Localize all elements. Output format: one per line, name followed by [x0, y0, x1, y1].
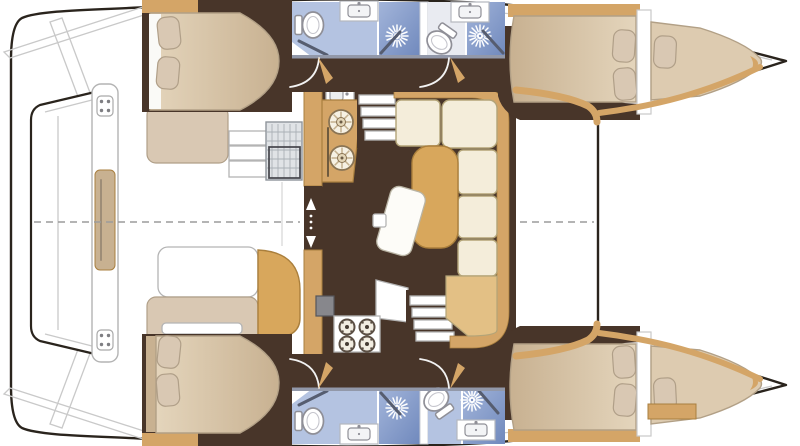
port-bathroom-aft — [292, 1, 420, 57]
port-bathroom-aft-wall-strip — [292, 55, 505, 59]
pillow — [612, 29, 636, 62]
port-aft-cabin-header — [142, 0, 198, 13]
port-fwd-cabin-deckband — [508, 4, 640, 17]
pillow — [156, 373, 181, 407]
stbd-aft-cabin-header — [142, 433, 198, 446]
cockpit-bench-port — [147, 106, 228, 163]
cleat-icon-starboard — [97, 330, 113, 350]
crossbeam-step-pad — [95, 170, 115, 270]
galley-prep-counter — [376, 280, 408, 322]
stbd-bathroom-fwd — [420, 383, 505, 444]
sink-icon — [451, 2, 489, 22]
sink-icon — [457, 420, 495, 440]
port-bathroom-wall — [420, 2, 428, 57]
burner-icon-1 — [340, 320, 355, 335]
galley-oven — [316, 296, 334, 316]
port-bulkhead — [637, 10, 651, 114]
toilet-icon — [295, 408, 324, 434]
port-bathroom-fwd — [423, 2, 505, 59]
pillow — [156, 335, 181, 369]
galley-round-sink-2 — [330, 146, 354, 170]
cockpit-bench-slat — [162, 323, 242, 334]
stbd-bathroom-aft — [292, 389, 420, 444]
salon-front-wall-port — [304, 86, 322, 186]
stern-platform — [31, 92, 95, 354]
cockpit-table — [158, 247, 258, 297]
pillow — [613, 383, 638, 417]
pillow — [156, 16, 181, 50]
floor-plan-canvas — [0, 0, 800, 446]
cleat-icon-port — [97, 96, 113, 116]
pillow — [613, 67, 638, 101]
cockpit-steps — [229, 131, 268, 177]
stbd-fwd-cabin-deckband — [508, 429, 640, 442]
salon — [304, 84, 516, 362]
stbd-forepeak-shelf — [648, 404, 696, 419]
sink-icon — [340, 424, 378, 444]
floor-plan-image — [0, 0, 800, 446]
stbd-bathroom-aft-wall-strip — [292, 388, 505, 392]
sink-icon — [340, 1, 378, 21]
cockpit-fridge-hatch — [266, 122, 302, 180]
pillow — [653, 35, 677, 68]
companionway-stairs-port — [357, 90, 401, 148]
burner-icon-2 — [360, 320, 375, 335]
toilet-icon — [295, 12, 324, 38]
table-leg — [373, 214, 386, 227]
burner-icon-4 — [360, 337, 375, 352]
pillow — [156, 56, 181, 90]
pillow — [612, 345, 636, 378]
stbd-aft-bed-headboard — [146, 336, 156, 432]
galley-round-sink-1 — [329, 110, 353, 134]
burner-icon-3 — [340, 337, 355, 352]
stbd-bulkhead — [637, 332, 651, 436]
